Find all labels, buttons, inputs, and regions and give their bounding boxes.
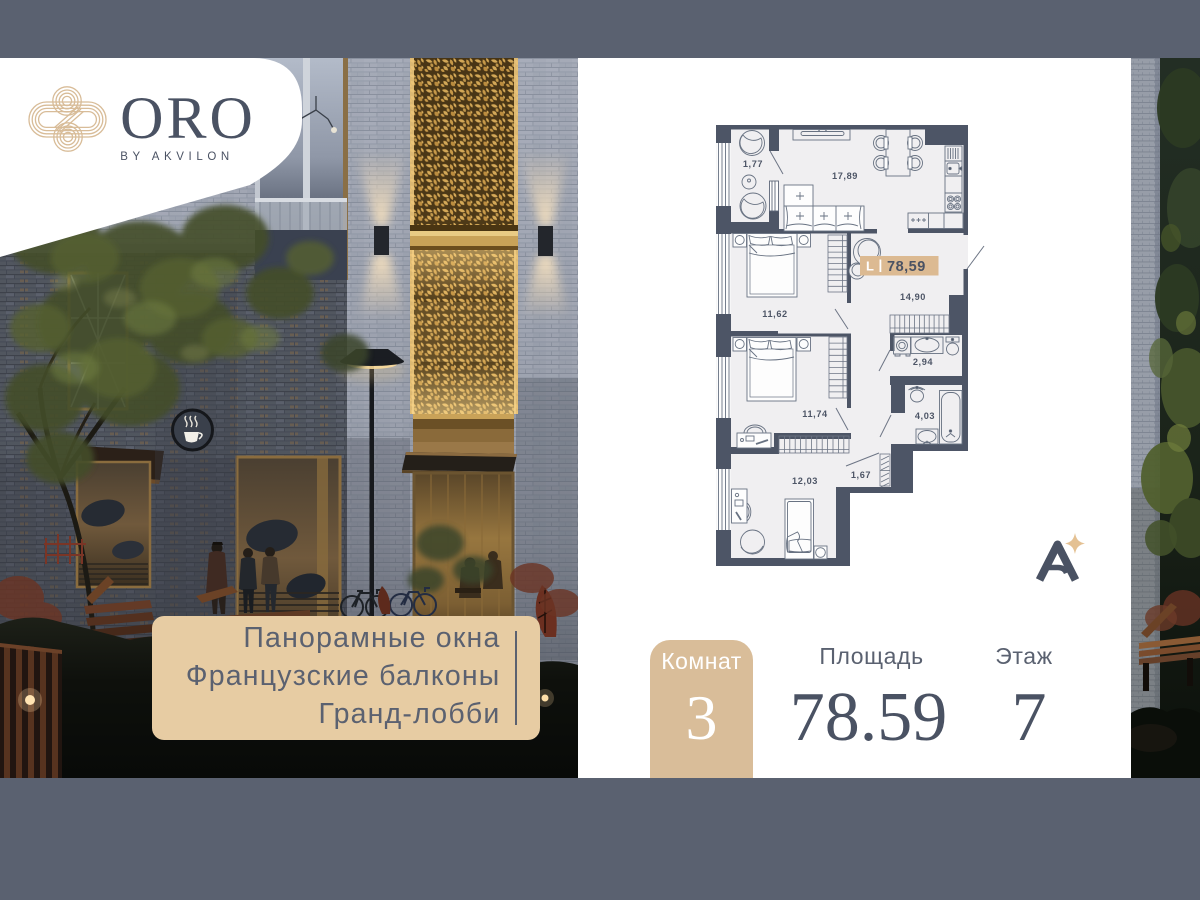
svg-text:2,94: 2,94 — [913, 357, 934, 367]
svg-text:78,59: 78,59 — [887, 259, 926, 275]
svg-text:11,62: 11,62 — [762, 309, 787, 319]
svg-text:ORO: ORO — [120, 85, 256, 151]
svg-text:14,90: 14,90 — [900, 292, 926, 302]
svg-text:12,03: 12,03 — [792, 476, 818, 486]
svg-text:17,89: 17,89 — [832, 171, 858, 181]
svg-text:1,67: 1,67 — [851, 470, 871, 480]
svg-text:BY AKVILON: BY AKVILON — [120, 151, 234, 163]
svg-text:L: L — [866, 259, 874, 274]
svg-text:11,74: 11,74 — [802, 409, 828, 419]
svg-text:4,03: 4,03 — [915, 411, 935, 421]
svg-text:1,77: 1,77 — [743, 159, 763, 169]
